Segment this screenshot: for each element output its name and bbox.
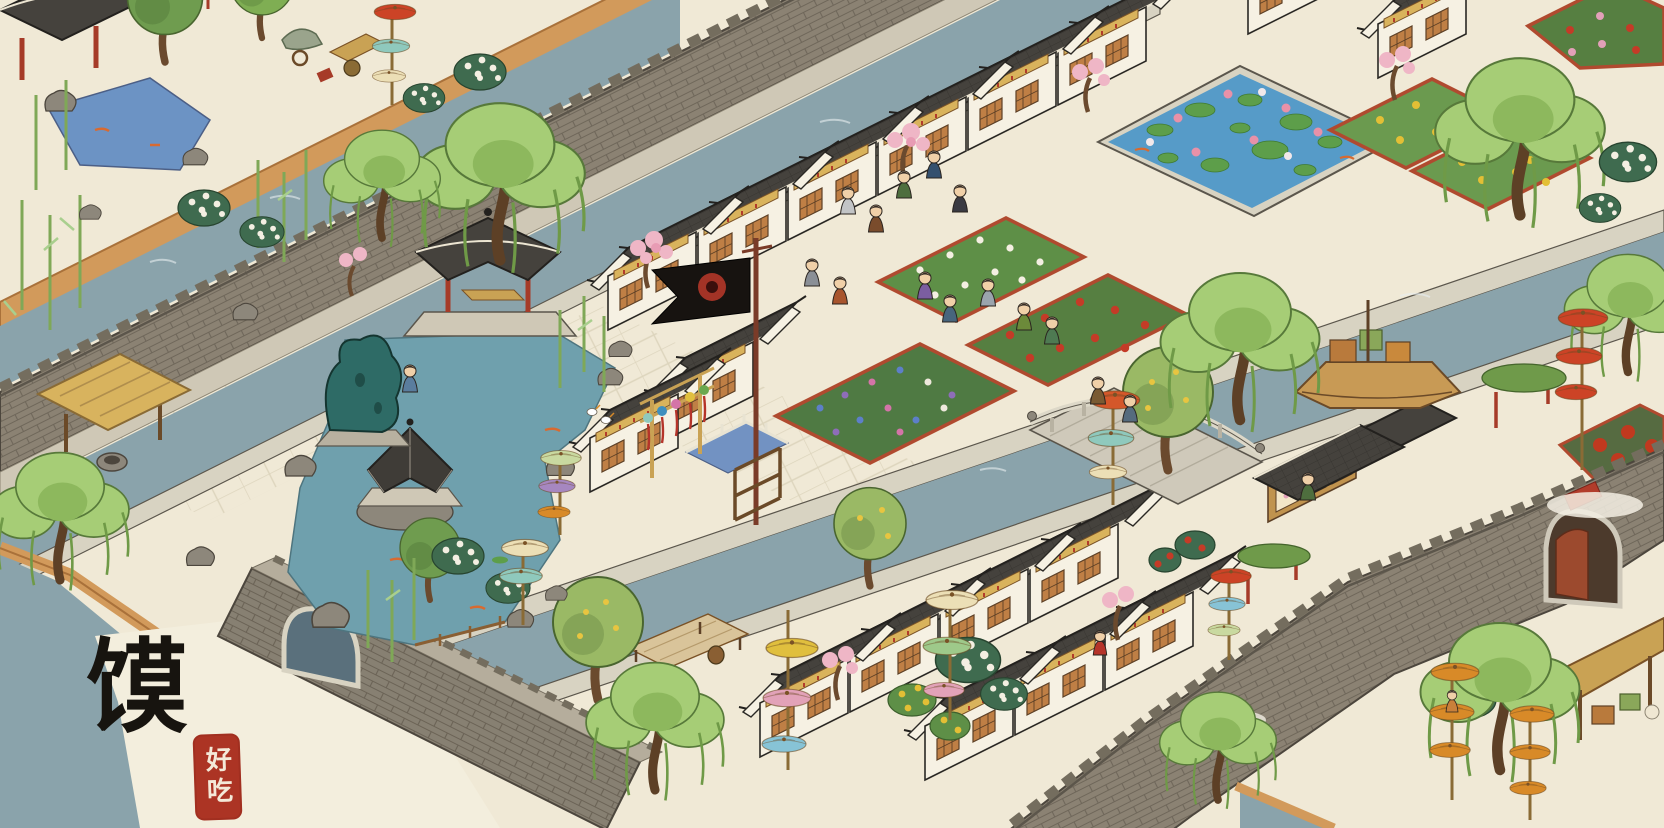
cargo-crate (1360, 330, 1382, 350)
peony-bush (403, 84, 445, 113)
cargo-crate (1386, 342, 1410, 362)
scene-illustration (0, 0, 1664, 828)
peony-bush (1579, 194, 1621, 223)
peony-bush (432, 538, 484, 574)
mist (1547, 492, 1643, 518)
barrel (708, 646, 724, 664)
lion-statue (1028, 412, 1037, 421)
gate-door (1556, 529, 1588, 600)
peony-bush (454, 54, 506, 90)
caption-character: 馍 (86, 638, 246, 740)
peony-bush (981, 678, 1028, 710)
lion-statue (1256, 444, 1265, 453)
caption-seal: 好吃 (193, 733, 243, 821)
peony-bush (1599, 142, 1656, 182)
peony-bush (178, 190, 230, 226)
peony-bush (240, 217, 284, 248)
cargo-crate (1330, 340, 1356, 362)
grain-sack (1645, 705, 1659, 719)
bronze-cauldron (344, 60, 360, 76)
game-viewport: 馍 好吃 (0, 0, 1664, 828)
caption-seal-text: 好吃 (198, 745, 237, 808)
